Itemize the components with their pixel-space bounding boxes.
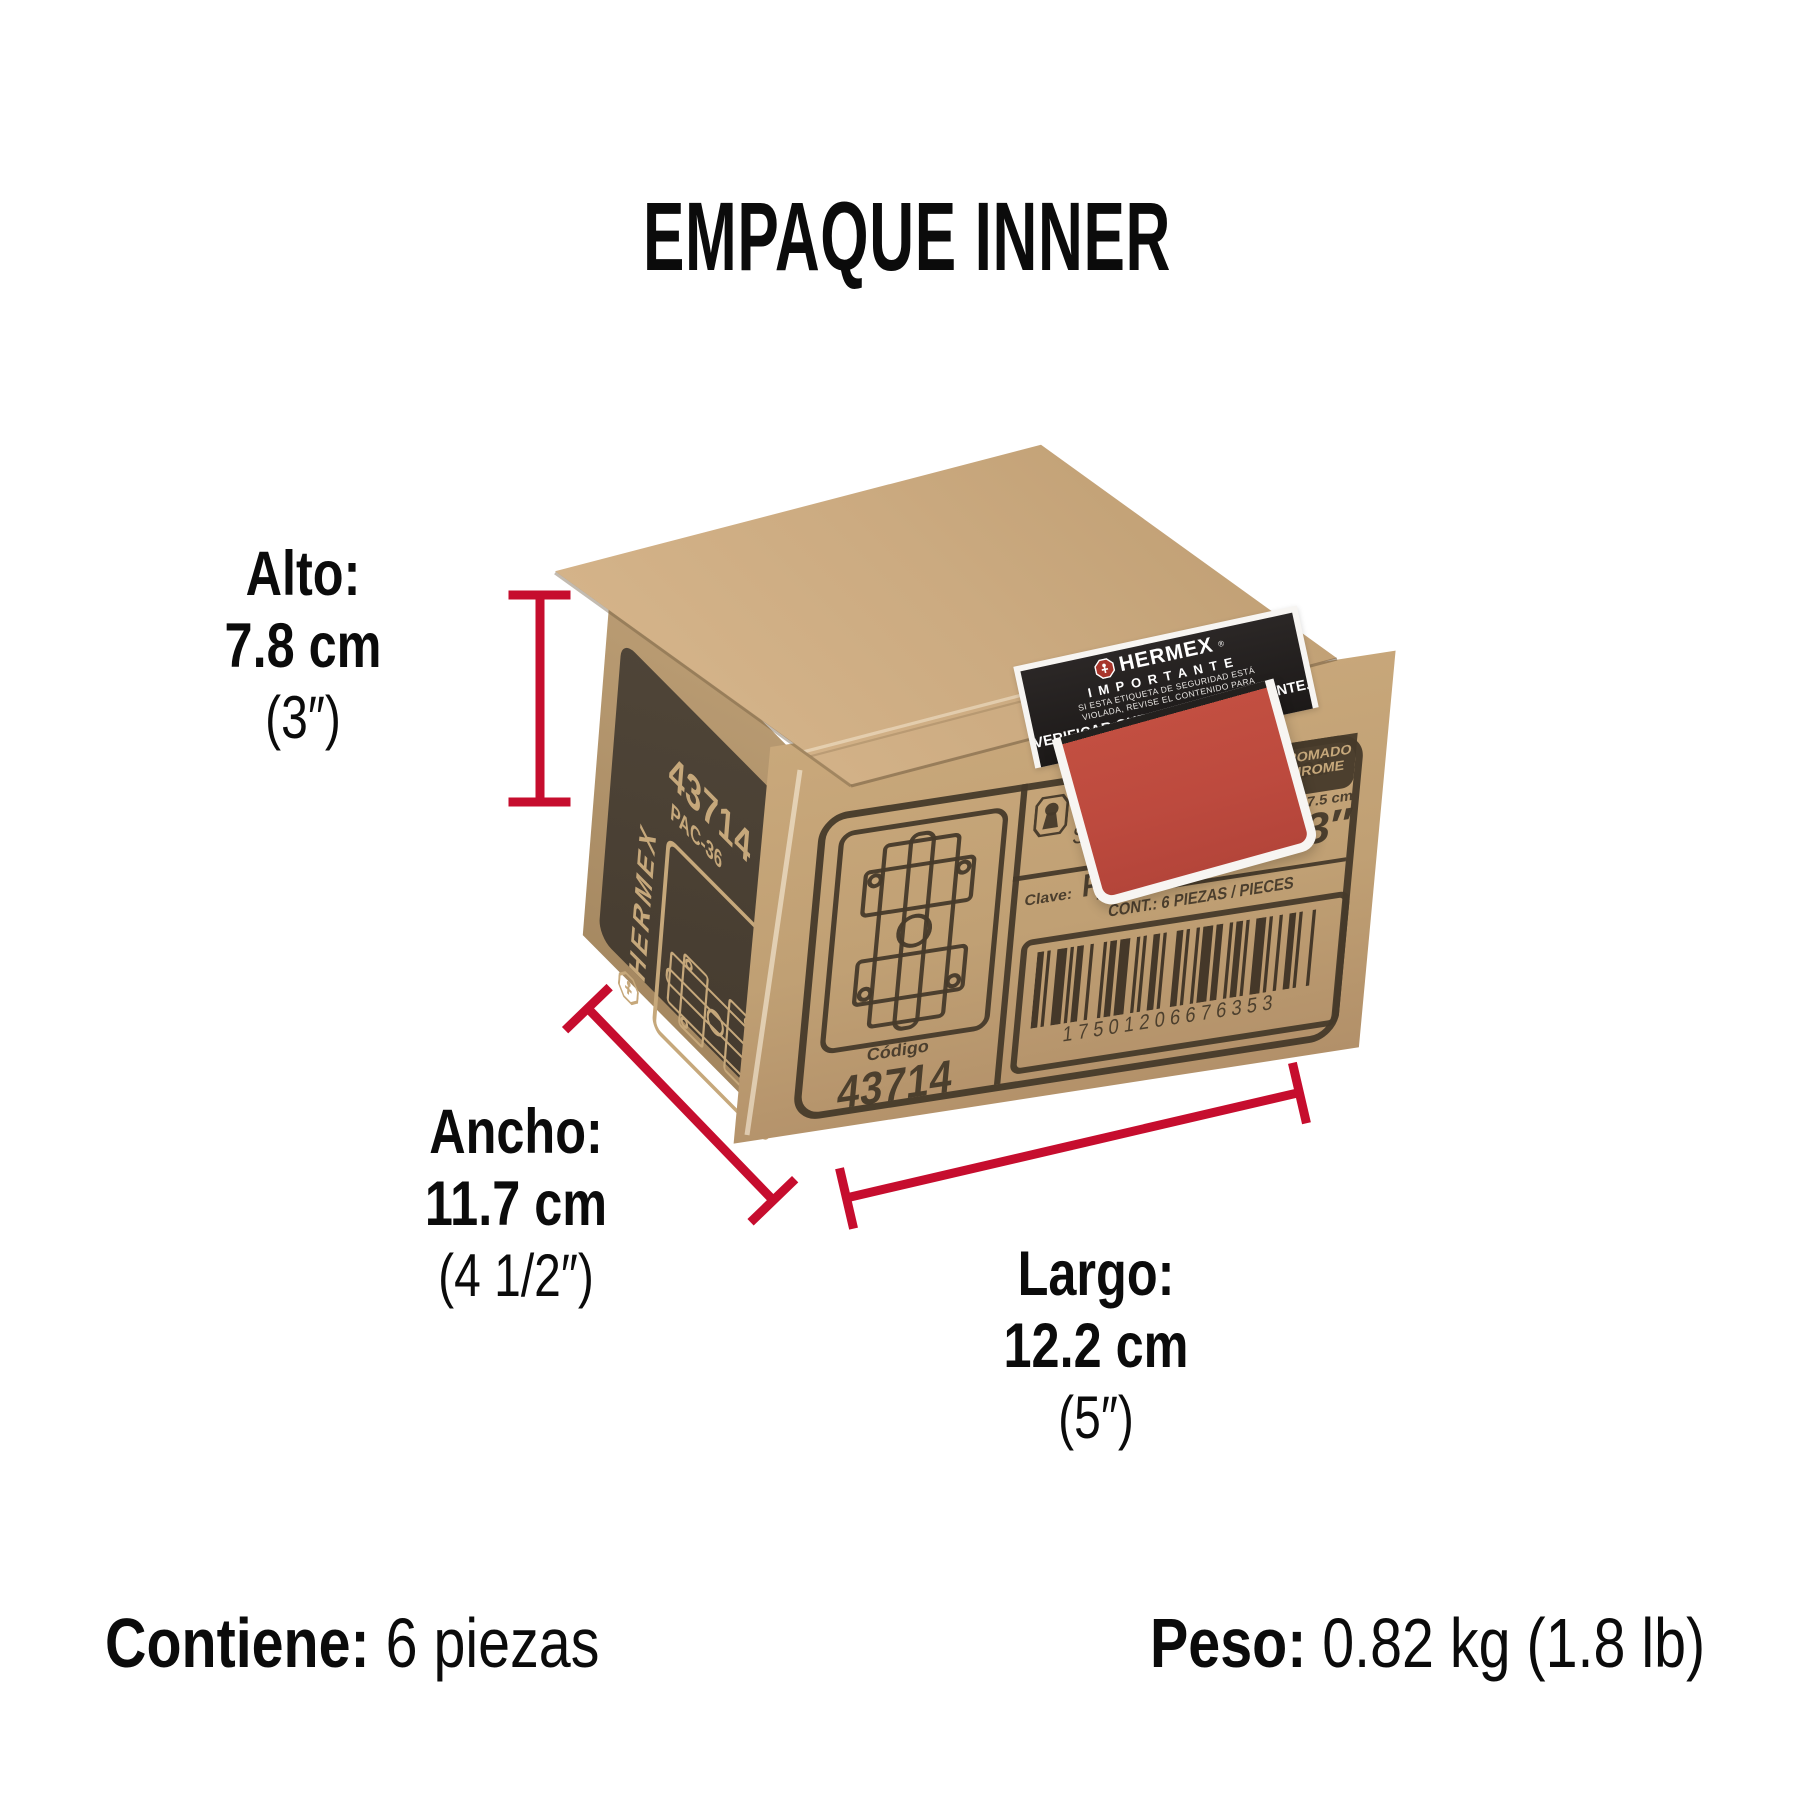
alto-label: Alto:	[143, 538, 463, 610]
largo-label: Largo:	[936, 1238, 1256, 1310]
alto-measure-line	[536, 593, 545, 805]
ancho-cm: 11.7 cm	[356, 1168, 676, 1240]
ancho-label: Ancho:	[356, 1096, 676, 1168]
package-dimensions-diagram: EMPAQUE INNER HERMEX 43714 PAC-36	[0, 0, 1800, 1800]
contains-text: Contiene: 6 piezas	[105, 1608, 599, 1678]
ancho-inch: (4 1/2″)	[356, 1240, 676, 1312]
security-label-logo-icon	[1093, 657, 1117, 681]
weight-label: Peso:	[1150, 1604, 1306, 1682]
weight-text: Peso: 0.82 kg (1.8 lb)	[1150, 1608, 1705, 1678]
box-edge-seams	[0, 0, 1800, 1800]
ancho-dimension-label: Ancho: 11.7 cm (4 1/2″)	[356, 1096, 676, 1312]
alto-inch: (3″)	[143, 682, 463, 754]
alto-line-cap-bottom	[509, 798, 571, 807]
contains-value: 6 piezas	[386, 1604, 600, 1682]
contains-label: Contiene:	[105, 1604, 370, 1682]
largo-cm: 12.2 cm	[936, 1310, 1256, 1382]
largo-inch: (5″)	[936, 1382, 1256, 1454]
alto-dimension-label: Alto: 7.8 cm (3″)	[143, 538, 463, 754]
weight-value: 0.82 kg (1.8 lb)	[1322, 1604, 1705, 1682]
alto-cm: 7.8 cm	[143, 610, 463, 682]
alto-line-cap-top	[509, 591, 571, 600]
security-label-reg: ®	[1217, 638, 1225, 648]
largo-dimension-label: Largo: 12.2 cm (5″)	[936, 1238, 1256, 1454]
